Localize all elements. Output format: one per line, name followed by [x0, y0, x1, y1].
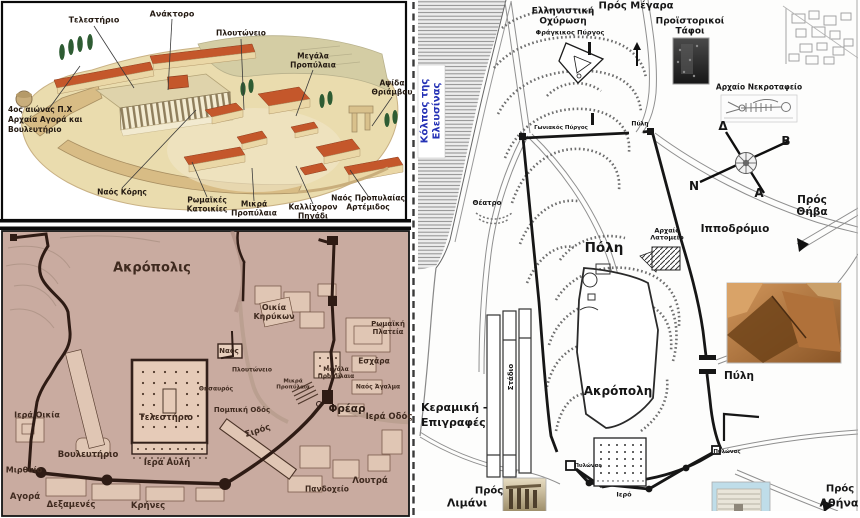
pylon-west-marker	[566, 461, 575, 470]
excavation-photo	[727, 283, 841, 363]
bottom-bar	[420, 511, 858, 518]
pylon-east-marker	[712, 446, 720, 454]
collage-artwork	[0, 0, 860, 518]
quarry	[652, 247, 680, 270]
telesterion-plan	[132, 360, 207, 459]
gulf-label-box	[418, 65, 445, 158]
sanctuary-square	[594, 438, 646, 486]
panel-divider	[0, 219, 411, 223]
athens-building-photo	[712, 482, 770, 513]
prehistoric-tombs-photo	[673, 38, 709, 84]
stadium	[487, 309, 531, 477]
acropolis-plateau	[577, 268, 658, 428]
necropolis-skeleton-sketch	[721, 95, 797, 122]
port-photo	[503, 478, 546, 513]
reconstruction-illustration	[2, 2, 406, 220]
citymap	[416, 0, 860, 518]
eleusis-maps-collage: Τελεστήριο Ανάκτορο Πλουτώνειο Μεγάλα Πρ…	[0, 0, 860, 518]
siteplan-map	[2, 231, 409, 516]
